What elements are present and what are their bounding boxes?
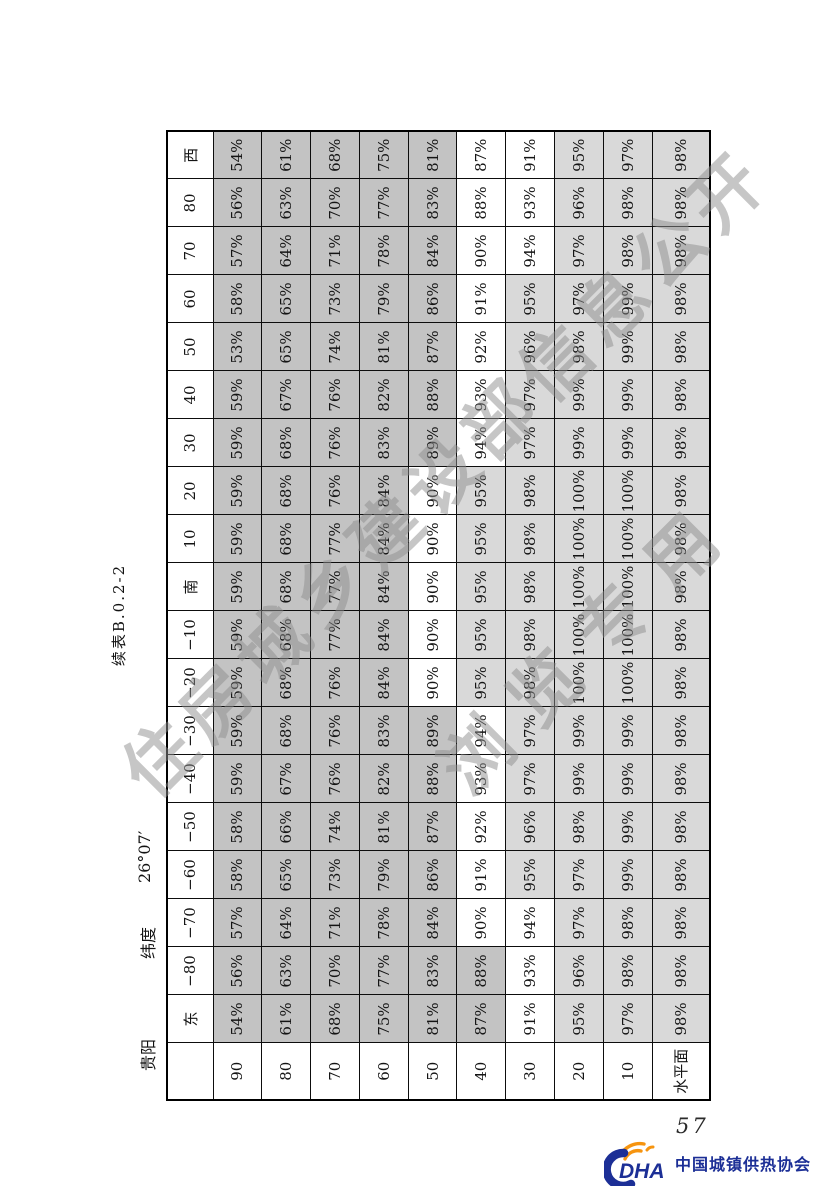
col-header: −40	[167, 755, 213, 803]
value-cell: 59%	[213, 755, 262, 803]
value-cell: 95%	[457, 467, 506, 515]
value-cell: 59%	[213, 659, 262, 707]
value-cell: 88%	[457, 947, 506, 995]
value-cell: 84%	[408, 899, 457, 947]
value-cell: 68%	[262, 659, 311, 707]
value-cell: 98%	[652, 611, 710, 659]
value-cell: 65%	[262, 851, 311, 899]
row-header: 水平面	[652, 1043, 710, 1100]
value-cell: 98%	[506, 515, 555, 563]
value-cell: 91%	[506, 131, 555, 179]
value-cell: 65%	[262, 323, 311, 371]
row-header: 80	[262, 1043, 311, 1100]
value-cell: 59%	[213, 611, 262, 659]
solar-gain-table: 东−80−70−60−50−40−30−20−10南10203040506070…	[166, 130, 711, 1101]
value-cell: 98%	[603, 947, 652, 995]
value-cell: 82%	[359, 371, 408, 419]
value-cell: 59%	[213, 371, 262, 419]
value-cell: 93%	[506, 947, 555, 995]
value-cell: 98%	[652, 707, 710, 755]
value-cell: 99%	[603, 419, 652, 467]
col-header: 50	[167, 323, 213, 371]
value-cell: 97%	[506, 755, 555, 803]
value-cell: 97%	[506, 419, 555, 467]
value-cell: 100%	[555, 563, 604, 611]
value-cell: 93%	[457, 755, 506, 803]
row-header: 10	[603, 1043, 652, 1100]
value-cell: 95%	[506, 275, 555, 323]
value-cell: 97%	[555, 851, 604, 899]
value-cell: 100%	[603, 467, 652, 515]
value-cell: 99%	[603, 803, 652, 851]
value-cell: 76%	[311, 707, 360, 755]
value-cell: 98%	[652, 323, 710, 371]
value-cell: 76%	[311, 659, 360, 707]
association-logo: DHA 中国城镇供热协会	[604, 1139, 811, 1186]
value-cell: 98%	[652, 947, 710, 995]
value-cell: 95%	[457, 611, 506, 659]
value-cell: 91%	[457, 851, 506, 899]
value-cell: 97%	[603, 131, 652, 179]
value-cell: 98%	[506, 611, 555, 659]
value-cell: 89%	[408, 419, 457, 467]
value-cell: 67%	[262, 755, 311, 803]
value-cell: 95%	[555, 995, 604, 1043]
value-cell: 81%	[359, 323, 408, 371]
value-cell: 100%	[555, 659, 604, 707]
col-header: 30	[167, 419, 213, 467]
col-header: −10	[167, 611, 213, 659]
value-cell: 84%	[408, 227, 457, 275]
logo-orange-spark	[647, 1147, 653, 1150]
logo-abbr-text: DHA	[619, 1160, 665, 1183]
value-cell: 59%	[213, 563, 262, 611]
value-cell: 59%	[213, 707, 262, 755]
value-cell: 77%	[359, 947, 408, 995]
value-cell: 98%	[652, 179, 710, 227]
value-cell: 98%	[652, 371, 710, 419]
value-cell: 92%	[457, 323, 506, 371]
value-cell: 84%	[359, 563, 408, 611]
value-cell: 63%	[262, 947, 311, 995]
value-cell: 98%	[652, 131, 710, 179]
value-cell: 66%	[262, 803, 311, 851]
value-cell: 99%	[603, 371, 652, 419]
value-cell: 73%	[311, 851, 360, 899]
value-cell: 68%	[262, 515, 311, 563]
value-cell: 61%	[262, 131, 311, 179]
row-header: 60	[359, 1043, 408, 1100]
value-cell: 58%	[213, 275, 262, 323]
value-cell: 98%	[652, 515, 710, 563]
value-cell: 59%	[213, 467, 262, 515]
value-cell: 59%	[213, 419, 262, 467]
value-cell: 98%	[555, 323, 604, 371]
value-cell: 95%	[457, 563, 506, 611]
value-cell: 96%	[555, 179, 604, 227]
value-cell: 76%	[311, 467, 360, 515]
col-header: 东	[167, 995, 213, 1043]
value-cell: 98%	[652, 227, 710, 275]
value-cell: 68%	[262, 611, 311, 659]
value-cell: 59%	[213, 515, 262, 563]
value-cell: 83%	[359, 707, 408, 755]
col-header: 西	[167, 131, 213, 179]
value-cell: 56%	[213, 947, 262, 995]
value-cell: 98%	[603, 227, 652, 275]
value-cell: 58%	[213, 851, 262, 899]
value-cell: 84%	[359, 515, 408, 563]
row-header: 70	[311, 1043, 360, 1100]
value-cell: 77%	[311, 563, 360, 611]
value-cell: 65%	[262, 275, 311, 323]
value-cell: 100%	[603, 563, 652, 611]
value-cell: 92%	[457, 803, 506, 851]
value-cell: 98%	[652, 275, 710, 323]
value-cell: 94%	[457, 707, 506, 755]
value-cell: 83%	[408, 179, 457, 227]
row-header: 50	[408, 1043, 457, 1100]
value-cell: 100%	[555, 611, 604, 659]
value-cell: 70%	[311, 179, 360, 227]
col-header: 60	[167, 275, 213, 323]
value-cell: 76%	[311, 755, 360, 803]
value-cell: 87%	[457, 131, 506, 179]
value-cell: 91%	[457, 275, 506, 323]
row-header: 90	[213, 1043, 262, 1100]
association-name: 中国城镇供热协会	[675, 1151, 811, 1175]
table-row: 7068%70%71%73%74%76%76%76%77%77%77%76%76…	[311, 131, 360, 1100]
table-title: 续表B.0.2-2	[108, 129, 129, 1101]
value-cell: 84%	[359, 659, 408, 707]
page-number: 57	[676, 1114, 709, 1138]
col-header: 40	[167, 371, 213, 419]
value-cell: 68%	[262, 707, 311, 755]
value-cell: 73%	[311, 275, 360, 323]
value-cell: 94%	[506, 227, 555, 275]
value-cell: 76%	[311, 371, 360, 419]
value-cell: 99%	[603, 755, 652, 803]
value-cell: 99%	[555, 707, 604, 755]
value-cell: 98%	[652, 755, 710, 803]
value-cell: 96%	[506, 323, 555, 371]
table-header-row: 东−80−70−60−50−40−30−20−10南10203040506070…	[167, 131, 213, 1100]
value-cell: 95%	[506, 851, 555, 899]
value-cell: 57%	[213, 899, 262, 947]
value-cell: 83%	[408, 947, 457, 995]
row-header: 20	[555, 1043, 604, 1100]
value-cell: 86%	[408, 851, 457, 899]
table-row: 水平面98%98%98%98%98%98%98%98%98%98%98%98%9…	[652, 131, 710, 1100]
latitude-value: 26°07′	[135, 831, 154, 883]
value-cell: 95%	[457, 515, 506, 563]
value-cell: 76%	[311, 419, 360, 467]
value-cell: 95%	[555, 131, 604, 179]
value-cell: 77%	[311, 611, 360, 659]
col-header: 70	[167, 227, 213, 275]
table-row: 9054%56%57%58%58%59%59%59%59%59%59%59%59…	[213, 131, 262, 1100]
table-row: 4087%88%90%91%92%93%94%95%95%95%95%95%94…	[457, 131, 506, 1100]
value-cell: 90%	[408, 563, 457, 611]
value-cell: 74%	[311, 803, 360, 851]
value-cell: 68%	[311, 131, 360, 179]
value-cell: 98%	[652, 803, 710, 851]
value-cell: 74%	[311, 323, 360, 371]
col-header: −80	[167, 947, 213, 995]
value-cell: 67%	[262, 371, 311, 419]
col-header: −30	[167, 707, 213, 755]
value-cell: 99%	[555, 371, 604, 419]
value-cell: 97%	[555, 899, 604, 947]
value-cell: 93%	[457, 371, 506, 419]
col-header: −20	[167, 659, 213, 707]
value-cell: 88%	[408, 755, 457, 803]
value-cell: 77%	[359, 179, 408, 227]
value-cell: 100%	[603, 611, 652, 659]
value-cell: 100%	[555, 515, 604, 563]
value-cell: 88%	[408, 371, 457, 419]
value-cell: 79%	[359, 275, 408, 323]
value-cell: 98%	[652, 851, 710, 899]
value-cell: 94%	[457, 419, 506, 467]
value-cell: 64%	[262, 899, 311, 947]
col-header: −50	[167, 803, 213, 851]
value-cell: 98%	[652, 659, 710, 707]
value-cell: 71%	[311, 227, 360, 275]
value-cell: 100%	[603, 659, 652, 707]
value-cell: 63%	[262, 179, 311, 227]
value-cell: 53%	[213, 323, 262, 371]
value-cell: 98%	[603, 179, 652, 227]
value-cell: 90%	[457, 227, 506, 275]
value-cell: 99%	[603, 707, 652, 755]
value-cell: 90%	[408, 467, 457, 515]
value-cell: 86%	[408, 275, 457, 323]
value-cell: 97%	[506, 707, 555, 755]
city-label: 贵阳	[135, 1039, 159, 1071]
value-cell: 71%	[311, 899, 360, 947]
value-cell: 97%	[555, 227, 604, 275]
value-cell: 90%	[408, 659, 457, 707]
col-header: 10	[167, 515, 213, 563]
value-cell: 87%	[408, 803, 457, 851]
value-cell: 90%	[408, 515, 457, 563]
table-row: 3091%93%94%95%96%97%97%98%98%98%98%98%97…	[506, 131, 555, 1100]
value-cell: 81%	[408, 995, 457, 1043]
table-row: 1097%98%98%99%99%99%99%100%100%100%100%1…	[603, 131, 652, 1100]
value-cell: 83%	[359, 419, 408, 467]
document-page: 续表B.0.2-2 贵阳 纬度 26°07′ 东−80−70−60−50−40−…	[0, 0, 827, 1198]
value-cell: 91%	[506, 995, 555, 1043]
value-cell: 93%	[506, 179, 555, 227]
value-cell: 56%	[213, 179, 262, 227]
value-cell: 70%	[311, 947, 360, 995]
value-cell: 98%	[652, 419, 710, 467]
value-cell: 68%	[262, 419, 311, 467]
value-cell: 97%	[506, 371, 555, 419]
value-cell: 58%	[213, 803, 262, 851]
value-cell: 68%	[311, 995, 360, 1043]
value-cell: 98%	[652, 467, 710, 515]
value-cell: 75%	[359, 131, 408, 179]
table-row: 2095%96%97%97%98%99%99%100%100%100%100%1…	[555, 131, 604, 1100]
value-cell: 96%	[555, 947, 604, 995]
value-cell: 87%	[408, 323, 457, 371]
value-cell: 98%	[506, 563, 555, 611]
table-row: 5081%83%84%86%87%88%89%90%90%90%90%90%89…	[408, 131, 457, 1100]
col-header: −60	[167, 851, 213, 899]
value-cell: 98%	[506, 467, 555, 515]
value-cell: 99%	[555, 755, 604, 803]
value-cell: 99%	[603, 851, 652, 899]
value-cell: 98%	[603, 899, 652, 947]
value-cell: 88%	[457, 179, 506, 227]
value-cell: 68%	[262, 563, 311, 611]
value-cell: 75%	[359, 995, 408, 1043]
col-header: 80	[167, 179, 213, 227]
value-cell: 100%	[555, 467, 604, 515]
value-cell: 61%	[262, 995, 311, 1043]
value-cell: 94%	[506, 899, 555, 947]
value-cell: 96%	[506, 803, 555, 851]
value-cell: 54%	[213, 131, 262, 179]
col-header: −70	[167, 899, 213, 947]
value-cell: 99%	[603, 323, 652, 371]
value-cell: 97%	[555, 275, 604, 323]
value-cell: 97%	[603, 995, 652, 1043]
value-cell: 81%	[359, 803, 408, 851]
rotated-table-block: 续表B.0.2-2 贵阳 纬度 26°07′ 东−80−70−60−50−40−…	[108, 129, 711, 1101]
value-cell: 98%	[652, 563, 710, 611]
latitude-label: 纬度	[135, 927, 159, 959]
value-cell: 89%	[408, 707, 457, 755]
value-cell: 78%	[359, 227, 408, 275]
value-cell: 57%	[213, 227, 262, 275]
value-cell: 81%	[408, 131, 457, 179]
value-cell: 98%	[555, 803, 604, 851]
row-header: 40	[457, 1043, 506, 1100]
value-cell: 84%	[359, 611, 408, 659]
value-cell: 90%	[457, 899, 506, 947]
table-row: 6075%77%78%79%81%82%83%84%84%84%84%84%83…	[359, 131, 408, 1100]
value-cell: 100%	[603, 515, 652, 563]
col-header: 南	[167, 563, 213, 611]
value-cell: 99%	[555, 419, 604, 467]
value-cell: 95%	[457, 659, 506, 707]
corner-cell	[167, 1043, 213, 1100]
value-cell: 87%	[457, 995, 506, 1043]
value-cell: 90%	[408, 611, 457, 659]
value-cell: 98%	[652, 899, 710, 947]
value-cell: 84%	[359, 467, 408, 515]
table-body: 东−80−70−60−50−40−30−20−10南10203040506070…	[167, 131, 710, 1100]
value-cell: 77%	[311, 515, 360, 563]
value-cell: 98%	[652, 995, 710, 1043]
table-row: 8061%63%64%65%66%67%68%68%68%68%68%68%68…	[262, 131, 311, 1100]
value-cell: 64%	[262, 227, 311, 275]
value-cell: 68%	[262, 467, 311, 515]
dha-logo-icon: DHA	[604, 1139, 668, 1186]
value-cell: 78%	[359, 899, 408, 947]
value-cell: 82%	[359, 755, 408, 803]
col-header: 20	[167, 467, 213, 515]
row-header: 30	[506, 1043, 555, 1100]
value-cell: 99%	[603, 275, 652, 323]
value-cell: 54%	[213, 995, 262, 1043]
value-cell: 79%	[359, 851, 408, 899]
value-cell: 98%	[506, 659, 555, 707]
